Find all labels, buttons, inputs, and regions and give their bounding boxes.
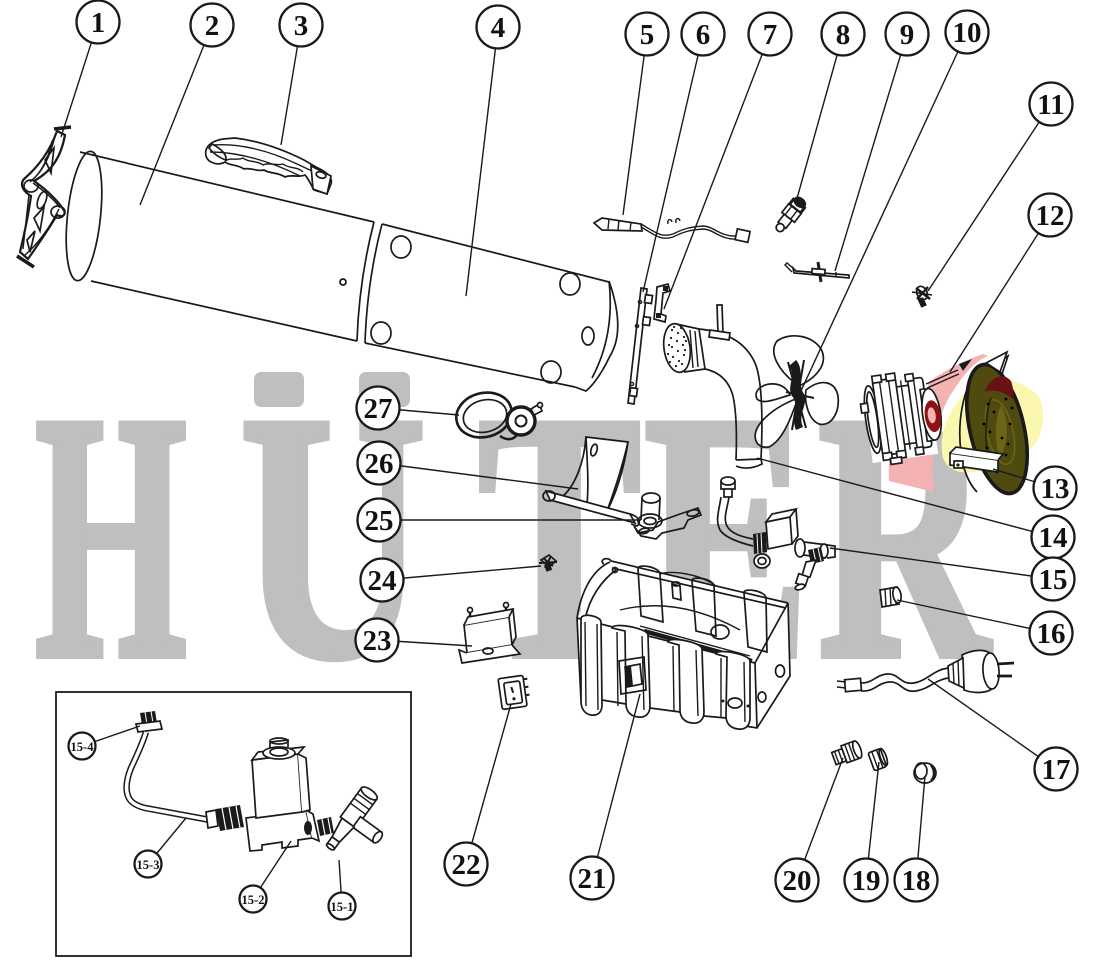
svg-text:15-3: 15-3 — [137, 858, 160, 872]
svg-text:12: 12 — [1036, 200, 1065, 232]
svg-text:10: 10 — [953, 17, 982, 49]
svg-text:19: 19 — [852, 865, 881, 897]
svg-text:22: 22 — [452, 849, 481, 881]
svg-text:17: 17 — [1042, 754, 1071, 786]
svg-text:6: 6 — [696, 19, 711, 51]
svg-text:3: 3 — [294, 10, 309, 42]
svg-text:2: 2 — [205, 10, 220, 42]
svg-text:15-1: 15-1 — [331, 900, 354, 914]
svg-text:9: 9 — [900, 19, 915, 51]
svg-text:27: 27 — [364, 393, 393, 425]
svg-text:15-2: 15-2 — [242, 893, 265, 907]
svg-text:16: 16 — [1037, 618, 1066, 650]
svg-text:13: 13 — [1041, 473, 1070, 505]
svg-text:23: 23 — [363, 625, 392, 657]
svg-text:18: 18 — [902, 865, 931, 897]
svg-text:11: 11 — [1037, 89, 1064, 121]
svg-text:21: 21 — [578, 863, 607, 895]
svg-text:25: 25 — [365, 505, 394, 537]
svg-text:H: H — [35, 342, 187, 732]
svg-text:24: 24 — [368, 565, 397, 597]
svg-text:8: 8 — [836, 19, 851, 51]
svg-text:4: 4 — [491, 12, 506, 44]
svg-text:15: 15 — [1039, 564, 1068, 596]
svg-text:7: 7 — [763, 19, 778, 51]
svg-text:20: 20 — [783, 865, 812, 897]
svg-text:14: 14 — [1039, 522, 1068, 554]
svg-text:1: 1 — [91, 7, 106, 39]
svg-text:5: 5 — [640, 19, 655, 51]
svg-text:15-4: 15-4 — [71, 740, 95, 754]
svg-text:26: 26 — [365, 448, 394, 480]
